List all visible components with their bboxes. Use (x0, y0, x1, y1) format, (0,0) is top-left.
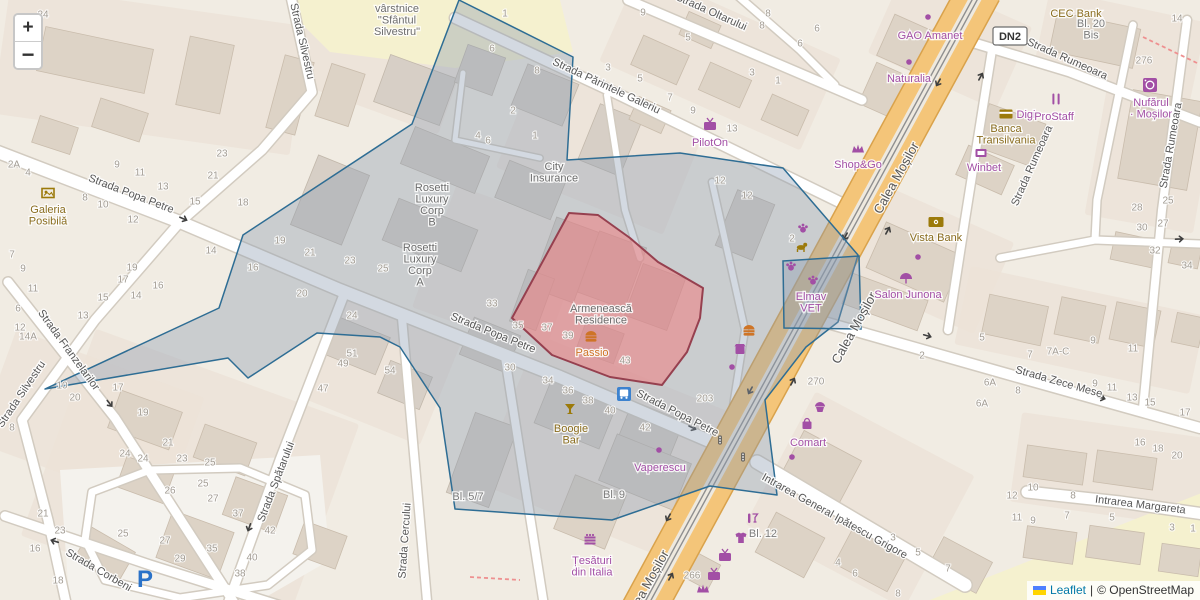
gallery-icon (42, 189, 54, 198)
attribution-separator: | (1090, 583, 1093, 597)
house-number-label: 9 (1090, 336, 1096, 347)
house-number-label: 6A (984, 378, 997, 389)
house-number-label: 23 (54, 526, 66, 537)
poi-label: Transilvania (977, 135, 1037, 147)
area-label: Rosetti (403, 242, 437, 254)
house-number-label: 3 (890, 533, 896, 544)
house-number-label: 20 (296, 289, 308, 300)
tv-icon-part (719, 553, 731, 561)
house-number-label: 6 (852, 569, 858, 580)
poi-label: ProStaff (1034, 111, 1074, 123)
burger-icon (586, 331, 597, 342)
bank-icon-part (935, 221, 937, 223)
house-number-label: 6 (489, 44, 495, 55)
laundry-icon-part (1145, 80, 1147, 82)
house-number-label: 26 (164, 486, 176, 497)
house-number-label: 1 (775, 76, 781, 87)
house-number-label: 11 (135, 168, 146, 179)
house-number-label: 8 (765, 9, 771, 20)
tv-icon-part (707, 118, 713, 122)
dot-icon (729, 364, 735, 370)
map-viewport[interactable]: Strada Popa PetreStrada Popa PetreStrada… (0, 0, 1200, 600)
house-number-label: 11 (1107, 383, 1118, 394)
area-label: Silvestru" (374, 26, 420, 38)
house-number-label: 17 (1179, 408, 1191, 419)
house-number-label: 2 (510, 106, 516, 117)
laundry-icon (1143, 78, 1157, 92)
house-number-label: 4 (25, 168, 31, 179)
house-number-label: 47 (317, 384, 329, 395)
dot-icon (656, 447, 662, 453)
fabric-icon-part (585, 543, 596, 545)
house-number-label: 9 (640, 8, 646, 19)
slot-icon (976, 149, 987, 157)
house-number-label: 19 (126, 263, 138, 274)
burger-icon-part (744, 333, 755, 336)
house-number-label: 34 (542, 376, 554, 387)
dot-icon-part (925, 14, 931, 20)
house-number-label: 5 (979, 333, 985, 344)
poi-label: Comart (790, 437, 826, 449)
burger-icon-part (744, 330, 755, 332)
dog-icon-part (803, 243, 807, 247)
house-number-label: 21 (207, 171, 219, 182)
dot-icon-part (656, 447, 662, 453)
area-label: City (545, 161, 564, 173)
traffic-light-icon-part (719, 442, 721, 444)
house-number-label: 39 (562, 331, 574, 342)
dot-icon-part (789, 454, 795, 460)
house-number-label: 9 (1030, 516, 1036, 527)
area-label: Bl. 9 (603, 489, 625, 501)
house-number-label: 24 (119, 449, 131, 460)
dot-icon-part (729, 364, 735, 370)
building (1158, 543, 1200, 576)
house-number-label: 8 (759, 21, 765, 32)
house-number-label: 21 (37, 509, 49, 520)
house-number-label: 17 (112, 383, 124, 394)
house-number-label: 7 (1064, 511, 1070, 522)
dot-icon (789, 454, 795, 460)
forkknife-icon (1052, 94, 1059, 105)
poi-label: Galeria (30, 204, 66, 216)
house-number-label: 10 (1027, 483, 1039, 494)
house-number-label: 10 (56, 381, 68, 392)
building (1023, 526, 1077, 565)
area-label: Armenească (570, 303, 633, 315)
house-number-label: 19 (137, 408, 149, 419)
house-number-label: 16 (247, 263, 259, 274)
poi-label: Nufărul (1133, 97, 1168, 109)
area-label: Bis (1083, 30, 1099, 42)
area-label: vârstnice (375, 3, 419, 15)
house-number-label: 20 (69, 393, 81, 404)
house-number-label: 13 (77, 311, 89, 322)
house-number-label: 8 (82, 193, 88, 204)
house-number-label: 8 (9, 423, 15, 434)
house-number-label: 4 (475, 131, 481, 142)
tv-icon-part (708, 572, 720, 580)
crown-icon-part (852, 145, 864, 153)
house-number-label: 5 (1109, 513, 1115, 524)
house-number-label: 7 (667, 93, 673, 104)
shop-icon-part (736, 347, 745, 355)
house-number-label: 15 (97, 293, 109, 304)
poi-label: Posibilă (29, 216, 68, 228)
paw-icon-part (812, 276, 815, 279)
house-number-label: 8 (534, 66, 540, 77)
house-number-label: 25 (197, 479, 209, 490)
openstreetmap-link[interactable]: © OpenStreetMap (1097, 583, 1194, 597)
house-number-label: 12 (714, 176, 726, 187)
poi-label: din Italia (572, 567, 614, 579)
house-number-label: 9 (690, 106, 696, 117)
poi-label: CEC Bank (1050, 8, 1102, 20)
fabric-icon-part (585, 540, 596, 542)
house-number-label: 266 (684, 571, 701, 582)
area-label: Corp (408, 265, 432, 277)
house-number-label: 18 (52, 576, 64, 587)
leaflet-link[interactable]: Leaflet (1050, 583, 1086, 597)
burger-icon (744, 325, 755, 336)
card-icon (1000, 110, 1013, 119)
house-number-label: 11 (1012, 513, 1023, 524)
house-number-label: 6 (485, 136, 491, 147)
house-number-label: 2 (919, 351, 925, 362)
house-number-label: 14 (130, 291, 142, 302)
house-number-label: 30 (1136, 223, 1148, 234)
poi-label: Vaperescu (634, 462, 686, 474)
street-label: Strada Cercului (396, 503, 413, 579)
house-number-label: 24 (137, 454, 149, 465)
tv-icon-part (704, 122, 716, 130)
zoom-control: + − (13, 13, 43, 70)
poi-label: Boogie (554, 423, 588, 435)
house-number-label: 19 (274, 236, 286, 247)
house-number-label: 2 (789, 234, 795, 245)
attribution-bar: Leaflet | © OpenStreetMap (1027, 581, 1200, 600)
house-number-label: 8 (895, 589, 901, 600)
house-number-label: 10 (97, 200, 109, 211)
house-number-label: 40 (604, 406, 616, 417)
bus-icon-part (620, 390, 628, 397)
house-number-label: 8 (1015, 386, 1021, 397)
dot-icon (925, 14, 931, 20)
bus-icon-part (625, 397, 627, 399)
house-number-label: 1 (502, 9, 508, 20)
house-number-label: 9 (1092, 379, 1098, 390)
parking-icon: P (137, 566, 153, 593)
crown-icon (852, 145, 864, 153)
poi-label: · Moșilor (1130, 109, 1173, 121)
area-label: Insurance (530, 173, 578, 185)
house-number-label: 23 (344, 256, 356, 267)
house-number-label: 36 (562, 386, 574, 397)
paw-icon-part (808, 277, 811, 280)
area-label: Bl. 5/7 (452, 491, 483, 503)
house-number-label: 14A (19, 332, 37, 343)
house-number-label: 13 (1126, 393, 1138, 404)
tv-icon-part (722, 549, 728, 553)
house-number-label: 16 (29, 544, 41, 555)
tshirt-icon-part (736, 533, 747, 544)
house-number-label: 23 (176, 454, 188, 465)
house-number-label: 1 (532, 131, 538, 142)
paw-icon-part (815, 277, 818, 280)
dot-icon-part (915, 254, 921, 260)
boundary-dashed-line (470, 577, 520, 580)
burger-icon-part (586, 336, 597, 338)
house-number-label: 17 (117, 275, 129, 286)
fabric-icon-part (592, 534, 594, 536)
house-number-label: 28 (1131, 203, 1143, 214)
house-number-label: 15 (189, 197, 201, 208)
house-number-label: 40 (246, 553, 258, 564)
house-number-label: 8 (1070, 491, 1076, 502)
house-number-label: 1 (1190, 524, 1196, 535)
house-number-label: 2A (8, 160, 21, 171)
house-number-label: 7 (9, 250, 15, 261)
house-number-label: 7 (1027, 350, 1033, 361)
house-number-label: 33 (486, 299, 498, 310)
paw-icon-part (788, 265, 794, 271)
road-ref-label: DN2 (999, 31, 1021, 43)
house-number-label: 16 (1134, 438, 1146, 449)
paw-icon-part (790, 262, 793, 265)
bus-icon-part (620, 397, 622, 399)
house-number-label: 20 (1171, 451, 1183, 462)
poi-label: PilotOn (692, 137, 728, 149)
tshirt-icon (736, 533, 747, 544)
house-number-label: 276 (1136, 56, 1153, 67)
house-number-label: 6 (15, 304, 21, 315)
house-number-label: 38 (582, 396, 594, 407)
house-number-label: 16 (152, 281, 164, 292)
house-number-label: 15 (1144, 398, 1156, 409)
dot-icon-part (906, 59, 912, 65)
house-number-label: 12 (741, 191, 753, 202)
house-number-label: 30 (504, 363, 516, 374)
poi-label: Shop&Go (834, 159, 882, 171)
house-number-label: 9 (20, 264, 26, 275)
poi-label: Winbet (967, 162, 1001, 174)
fabric-icon-part (585, 537, 596, 539)
house-number-label: 43 (619, 356, 631, 367)
house-number-label: 18 (237, 198, 249, 209)
house-number-label: 270 (808, 377, 825, 388)
shop-icon (735, 344, 746, 354)
house-number-label: 37 (541, 323, 553, 334)
house-number-label: 25 (117, 529, 129, 540)
slot-icon-part (978, 151, 985, 155)
zoom-in-button[interactable]: + (15, 15, 41, 42)
house-number-label: 6 (814, 24, 820, 35)
shop-icon-part (735, 344, 746, 347)
house-number-label: 11 (1128, 344, 1139, 355)
house-number-label: 54 (384, 366, 396, 377)
paw-icon-part (786, 263, 789, 266)
poi-label: Banca (990, 123, 1022, 135)
card-icon-part (1000, 110, 1013, 119)
house-number-label: 3 (1169, 523, 1175, 534)
burger-icon-part (586, 339, 597, 342)
house-number-label: 35 (206, 544, 218, 555)
bus-icon (617, 387, 631, 401)
dot-icon (906, 59, 912, 65)
area-label: Corp (420, 205, 444, 217)
fabric-icon-part (586, 534, 588, 536)
tv-icon (719, 549, 731, 561)
house-number-label: 7A-C (1047, 347, 1070, 358)
zoom-out-button[interactable]: − (15, 42, 41, 68)
map-canvas[interactable]: Strada Popa PetreStrada Popa PetreStrada… (0, 0, 1200, 600)
house-number-label: 3 (749, 68, 755, 79)
house-number-label: 6 (797, 39, 803, 50)
house-number-label: 6A (976, 399, 989, 410)
area-label: Luxury (415, 194, 449, 206)
house-number-label: 25 (204, 458, 216, 469)
house-number-label: 34 (1181, 261, 1193, 272)
house-number-label: 25 (1162, 196, 1174, 207)
house-number-label: 5 (915, 548, 921, 559)
poi-label: Elmav (796, 291, 827, 303)
poi-label: Naturalia (887, 73, 932, 85)
poi-label: Salon Junona (874, 289, 942, 301)
house-number-label: 14 (1171, 14, 1183, 25)
house-number-label: 14 (205, 246, 217, 257)
area-label: "Sfântul (378, 15, 416, 27)
house-number-label: 13 (157, 182, 169, 193)
paw-icon-part (805, 225, 808, 228)
fabric-icon-part (589, 534, 591, 536)
house-number-label: 5 (637, 74, 643, 85)
forkknife-icon-part (1052, 94, 1054, 105)
oneway-arrow-icon (923, 332, 932, 339)
house-number-label: 25 (377, 264, 389, 275)
house-number-label: 3 (605, 63, 611, 74)
house-number-label: 203 (697, 394, 714, 405)
house-number-label: 11 (28, 284, 39, 295)
poi-label: GAO Amanet (898, 30, 963, 42)
house-number-label: 35 (512, 321, 524, 332)
house-number-label: 42 (264, 526, 276, 537)
poi-label: VET (800, 303, 822, 315)
poi-label: Bar (562, 435, 579, 447)
house-number-label: 42 (639, 423, 651, 434)
traffic-light-icon-part (742, 456, 744, 458)
area-label: Rosetti (415, 182, 449, 194)
paw-icon-part (802, 224, 805, 227)
traffic-light-icon-part (719, 436, 721, 438)
card-icon-part (1000, 112, 1013, 114)
bag-icon-part (803, 422, 812, 430)
house-number-label: 49 (337, 359, 349, 370)
house-number-label: 32 (1149, 246, 1161, 257)
house-number-label: 38 (234, 569, 246, 580)
area-label: Bl. 12 (749, 528, 777, 540)
paw-icon-part (810, 279, 816, 285)
house-number-label: 5 (685, 33, 691, 44)
traffic-light-icon-part (742, 459, 744, 461)
house-number-label: 27 (159, 536, 171, 547)
house-number-label: 9 (114, 160, 120, 171)
house-number-label: 13 (726, 124, 738, 135)
poi-label: Digi (1017, 109, 1036, 121)
paw-icon-part (798, 225, 801, 228)
traffic-light-icon (741, 453, 745, 462)
poi-label: Țesături (572, 555, 612, 567)
house-number-label: 21 (162, 438, 174, 449)
traffic-light-icon-part (742, 453, 744, 455)
forkknife-icon-part (1058, 94, 1060, 105)
dot-icon (915, 254, 921, 260)
house-number-label: 21 (304, 248, 316, 259)
poi-label: Passio (575, 347, 608, 359)
ukraine-flag-icon (1033, 586, 1046, 595)
house-number-label: 12 (127, 215, 139, 226)
house-number-label: 24 (346, 311, 358, 322)
poi-label: Vista Bank (910, 232, 963, 244)
house-number-label: 4 (835, 558, 841, 569)
traffic-light-icon (718, 436, 722, 445)
paw-icon-part (793, 263, 796, 266)
traffic-light-icon-part (719, 439, 721, 441)
house-number-label: 18 (1152, 444, 1164, 455)
house-number-label: 29 (174, 554, 186, 565)
tv-icon (704, 118, 716, 130)
drinks-icon-part (748, 514, 750, 524)
house-number-label: 27 (1157, 219, 1169, 230)
house-number-label: 12 (1006, 491, 1018, 502)
paw-icon-part (800, 227, 806, 233)
area-label: B (428, 217, 435, 229)
bank-icon (929, 217, 944, 227)
house-number-label: 37 (232, 509, 244, 520)
area-label: Luxury (403, 254, 437, 266)
house-number-label: 27 (207, 494, 219, 505)
house-number-label: 23 (216, 149, 228, 160)
house-number-label: 7 (945, 564, 951, 575)
area-label: Residence (575, 315, 627, 327)
area-label: A (416, 277, 424, 289)
